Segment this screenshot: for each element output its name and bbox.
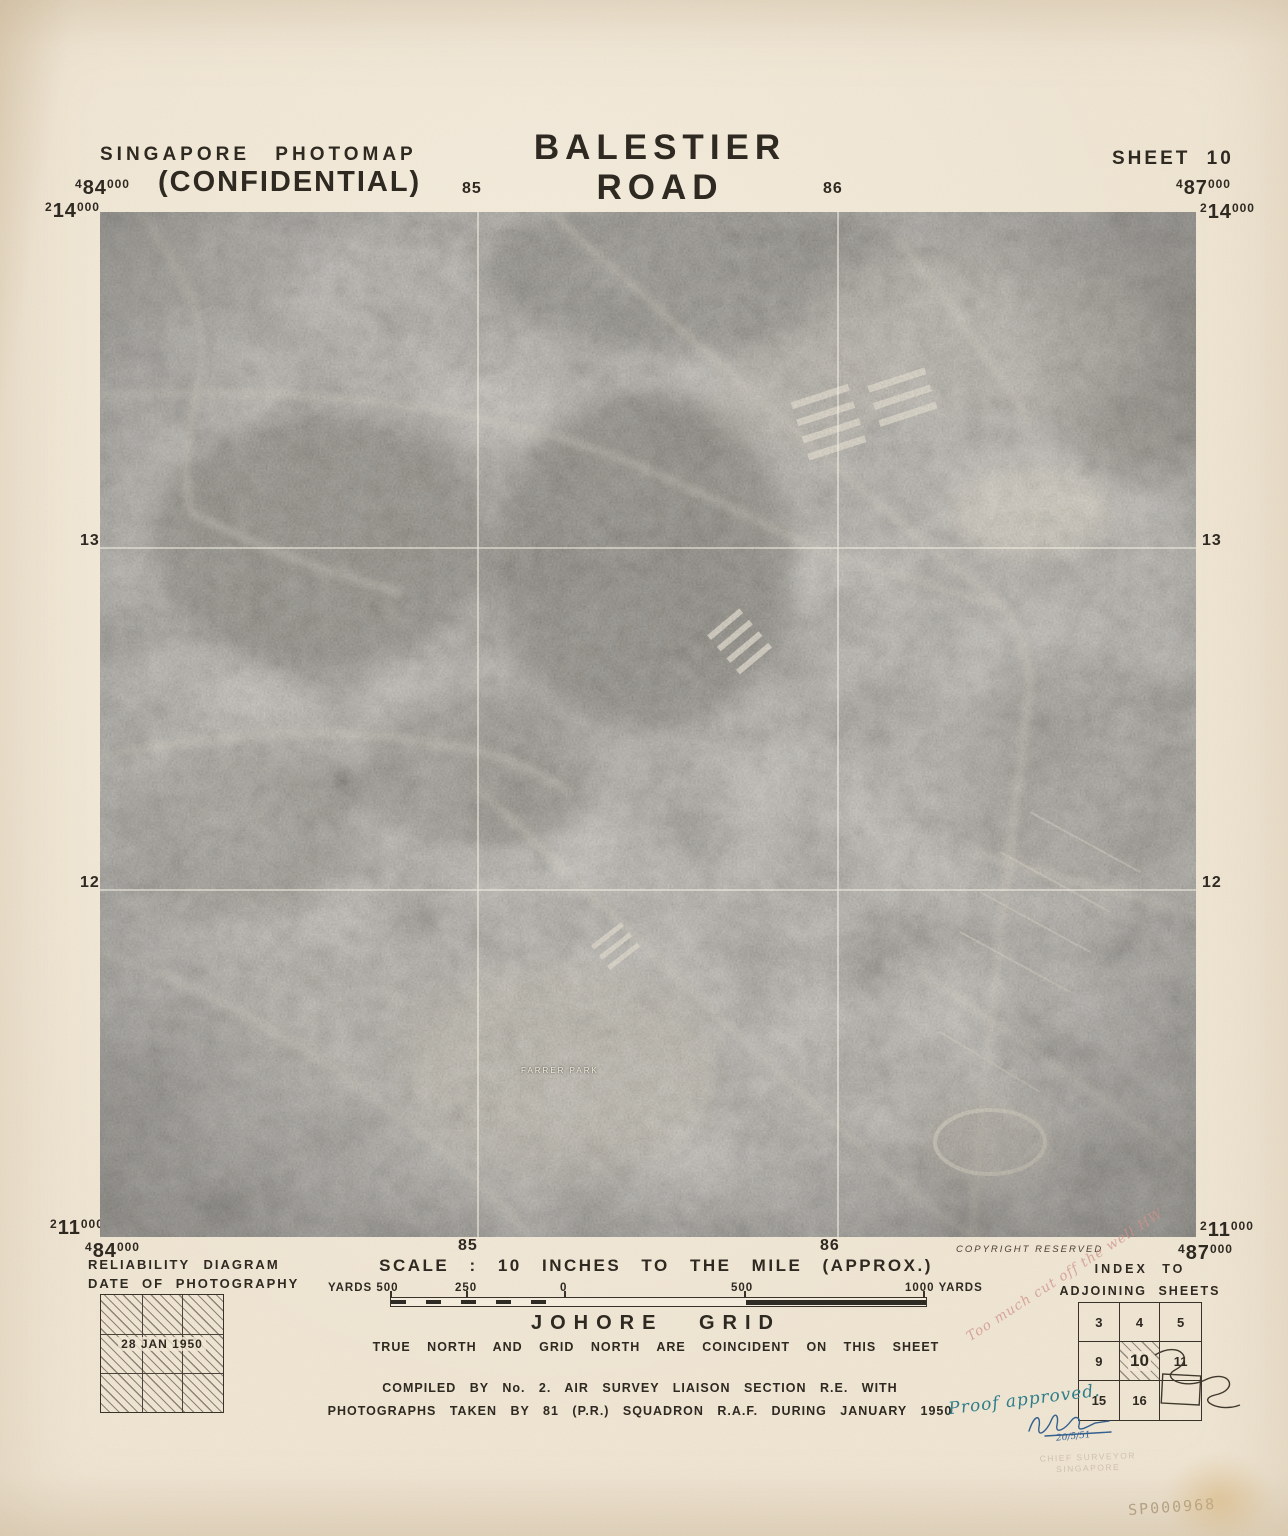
reliability-grid-line — [182, 1295, 183, 1412]
photo-place-label: FARRER PARK — [521, 1066, 599, 1075]
reliability-grid-line — [101, 1373, 223, 1374]
grid-label-left-12: 12 — [80, 874, 100, 892]
grid-label-right-12: 12 — [1202, 874, 1222, 892]
grid-label-bottom-85: 85 — [458, 1237, 478, 1255]
scale-bar — [390, 1297, 927, 1307]
reliability-grid-line — [101, 1334, 223, 1335]
reliability-diagram-title: RELIABILITY DIAGRAM — [88, 1257, 280, 1272]
scale-label-1000-yards: 1000 YARDS — [905, 1282, 983, 1294]
sheet-title: BALESTIER ROAD — [480, 128, 840, 208]
photo-vignette — [100, 212, 1196, 1237]
map-series-title: SINGAPORE PHOTOMAP — [100, 144, 417, 166]
sheet-number: SHEET 10 — [1112, 148, 1234, 170]
coordinate-top-right-easting: 487000 — [1176, 177, 1231, 200]
scale-bar-open-section — [566, 1298, 746, 1306]
index-title-line2: ADJOINING SHEETS — [1052, 1284, 1228, 1298]
coordinate-top-left-northing: 214000 — [45, 200, 100, 223]
grid-label-right-13: 13 — [1202, 532, 1222, 550]
date-of-photography-title: DATE OF PHOTOGRAPHY — [88, 1276, 299, 1291]
index-ink-scribble — [1140, 1335, 1260, 1430]
coordinate-bottom-left-northing: 211000 — [50, 1217, 104, 1240]
index-cell-sheet-3: 3 — [1079, 1303, 1120, 1342]
scale-label-yards-500: YARDS 500 — [328, 1282, 399, 1294]
grid-label-top-86: 86 — [823, 180, 843, 198]
grid-label-bottom-86: 86 — [820, 1237, 840, 1255]
reliability-diagram: 28 JAN 1950 — [100, 1294, 224, 1413]
coordinate-top-left-easting: 484000 — [75, 177, 130, 200]
photography-date: 28 JAN 1950 — [101, 1337, 223, 1351]
grid-label-left-13: 13 — [80, 532, 100, 550]
grid-label-top-85: 85 — [462, 180, 482, 198]
reliability-grid-line — [142, 1295, 143, 1412]
paper-stain — [1165, 1455, 1275, 1536]
compilation-note-line1: COMPILED BY No. 2. AIR SURVEY LIAISON SE… — [190, 1381, 1090, 1395]
scale-bar-subdivided-section — [391, 1298, 566, 1306]
photomap-sheet: SINGAPORE PHOTOMAP (CONFIDENTIAL) BALEST… — [0, 0, 1288, 1536]
aerial-photograph — [100, 212, 1196, 1237]
classification-label: (CONFIDENTIAL) — [158, 166, 421, 199]
scale-bar-solid-section — [746, 1298, 926, 1306]
scale-label-500: 500 — [731, 1282, 753, 1294]
coordinate-top-right-northing: 214000 — [1200, 201, 1255, 224]
scale-title: SCALE : 10 INCHES TO THE MILE (APPROX.) — [200, 1256, 1112, 1276]
faint-stamp: CHIEF SURVEYOR SINGAPORE — [1018, 1450, 1159, 1477]
copyright-notice: COPYRIGHT RESERVED — [956, 1244, 1103, 1255]
index-cell-sheet-9: 9 — [1079, 1342, 1120, 1381]
aerial-photo-render — [100, 212, 1196, 1237]
coordinate-bottom-right-northing: 211000 — [1200, 1219, 1254, 1242]
